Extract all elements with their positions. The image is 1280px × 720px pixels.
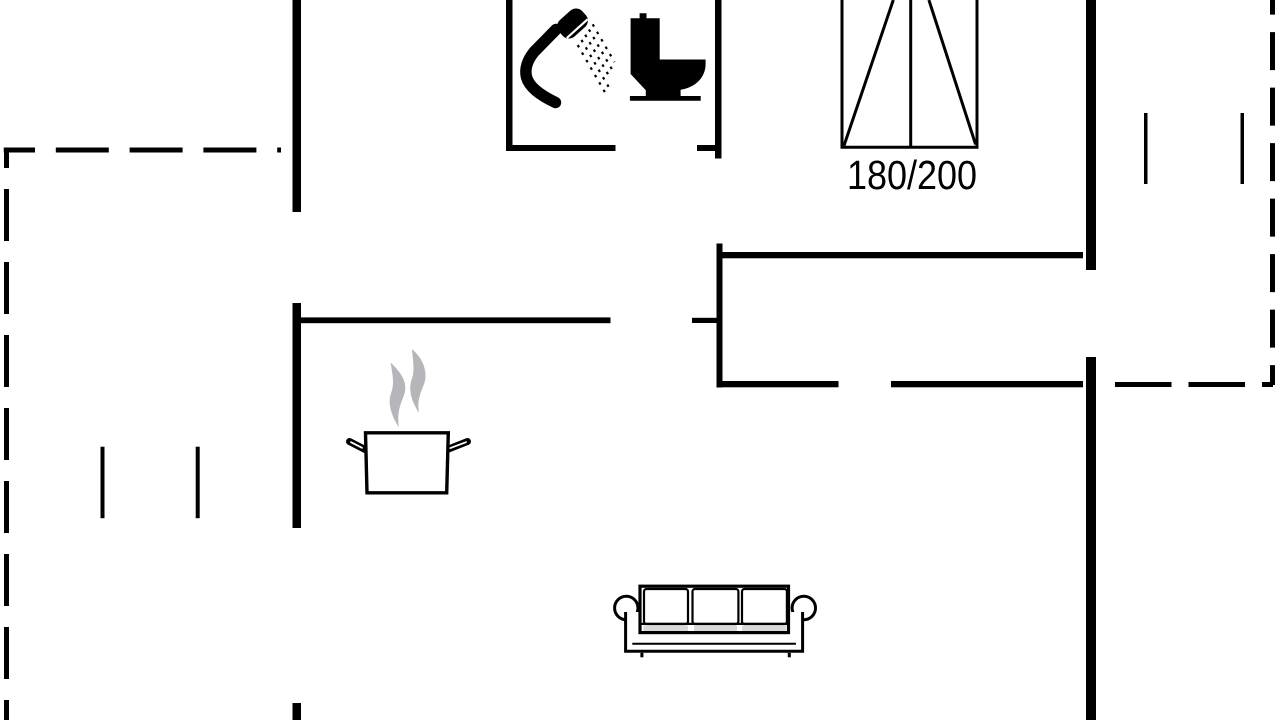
svg-text:180/200: 180/200 bbox=[847, 152, 977, 198]
